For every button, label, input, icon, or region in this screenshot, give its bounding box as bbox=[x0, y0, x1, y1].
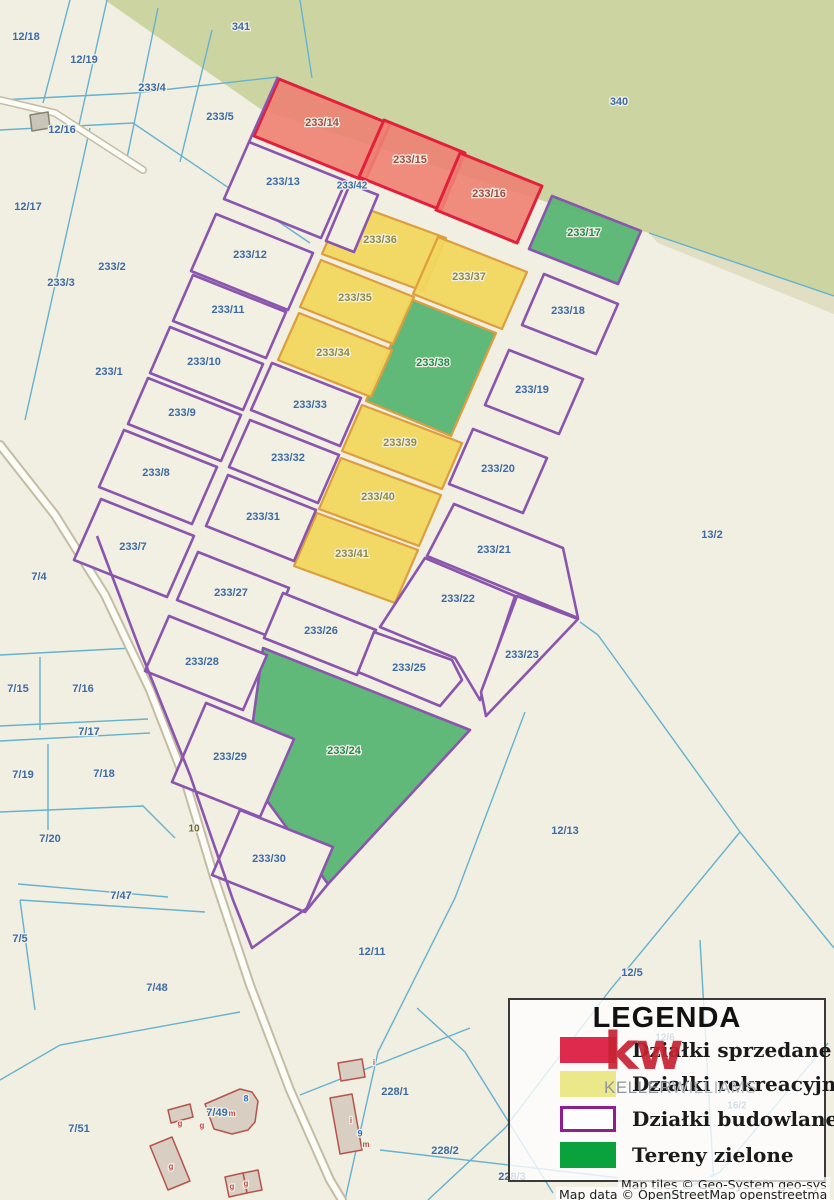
map-label-233-26: 233/26 bbox=[304, 625, 338, 637]
map-label-g: g bbox=[244, 1179, 249, 1188]
map-label-233-27: 233/27 bbox=[214, 587, 248, 599]
map-label-7-5: 7/5 bbox=[12, 933, 27, 945]
map-label-233-3: 233/3 bbox=[47, 277, 75, 289]
map-label-233-17: 233/17 bbox=[567, 227, 601, 239]
map-label-233-40: 233/40 bbox=[361, 491, 395, 503]
legend-swatch-building-icon bbox=[560, 1106, 616, 1132]
map-label-233-28: 233/28 bbox=[185, 656, 219, 668]
map-label-233-34: 233/34 bbox=[316, 347, 351, 359]
map-label-233-19: 233/19 bbox=[515, 384, 549, 396]
map-label-7-4: 7/4 bbox=[31, 571, 47, 583]
map-label-7-18: 7/18 bbox=[93, 768, 114, 780]
map-label-233-12: 233/12 bbox=[233, 249, 267, 261]
map-label-7-47: 7/47 bbox=[110, 890, 131, 902]
map-label-12-11: 12/11 bbox=[359, 946, 386, 958]
map-label-228-2: 228/2 bbox=[431, 1145, 459, 1157]
map-label-7-48: 7/48 bbox=[146, 982, 167, 994]
map-label-233-10: 233/10 bbox=[187, 356, 221, 368]
map-label-233-4: 233/4 bbox=[138, 82, 166, 94]
map-label-233-41: 233/41 bbox=[335, 548, 369, 560]
legend-row-building: Działki budowlane bbox=[510, 1106, 824, 1134]
map-label-340: 340 bbox=[610, 96, 628, 108]
map-label-233-29: 233/29 bbox=[213, 751, 247, 763]
map-label-7-16: 7/16 bbox=[72, 683, 93, 695]
map-label-233-22: 233/22 bbox=[441, 593, 475, 605]
map-label-233-33: 233/33 bbox=[293, 399, 327, 411]
map-label-12-5: 12/5 bbox=[621, 967, 642, 979]
map-label-233-23: 233/23 bbox=[505, 649, 539, 661]
map-label-233-5: 233/5 bbox=[206, 111, 234, 123]
map-label-233-31: 233/31 bbox=[246, 511, 280, 523]
map-label-12-17: 12/17 bbox=[14, 201, 42, 213]
map-page: 12/1812/19233/4233/534134012/1612/17233/… bbox=[0, 0, 834, 1200]
legend-row-green: Tereny zielone bbox=[510, 1142, 824, 1170]
map-label-7-17: 7/17 bbox=[78, 726, 99, 738]
map-label-233-9: 233/9 bbox=[168, 407, 196, 419]
map-label-g: g bbox=[178, 1119, 183, 1128]
map-label-233-13: 233/13 bbox=[266, 176, 300, 188]
map-label-12-13: 12/13 bbox=[551, 825, 579, 837]
map-label-228-1: 228/1 bbox=[381, 1086, 409, 1098]
map-label-i: i bbox=[373, 1058, 375, 1067]
map-label-12-19: 12/19 bbox=[70, 54, 98, 66]
map-label-g: g bbox=[200, 1121, 205, 1130]
map-label-233-37: 233/37 bbox=[452, 271, 486, 283]
map-label-233-24: 233/24 bbox=[327, 745, 362, 757]
map-label-7-19: 7/19 bbox=[12, 769, 33, 781]
legend-label-sold: Działki sprzedane bbox=[632, 1038, 831, 1062]
map-label-233-21: 233/21 bbox=[477, 544, 511, 556]
map-label-7-49: 7/49 bbox=[206, 1107, 227, 1119]
map-label-g: g bbox=[230, 1182, 235, 1191]
legend-swatch-recreational-icon bbox=[560, 1071, 616, 1097]
map-label-233-15: 233/15 bbox=[393, 154, 427, 166]
building-house-228-1a bbox=[338, 1059, 365, 1081]
map-label-13-2: 13/2 bbox=[701, 529, 722, 541]
map-label-233-16: 233/16 bbox=[472, 188, 506, 200]
map-label-9: 9 bbox=[357, 1128, 362, 1138]
legend-swatch-sold-icon bbox=[560, 1037, 616, 1063]
legend-title: LEGENDA bbox=[510, 1002, 824, 1035]
map-label-7-51: 7/51 bbox=[68, 1123, 89, 1135]
legend-row-recreational: Działki rekreacyjne bbox=[510, 1071, 824, 1099]
map-label-233-1: 233/1 bbox=[95, 366, 123, 378]
building-shed bbox=[30, 112, 50, 131]
map-label-233-38: 233/38 bbox=[416, 357, 450, 369]
legend-label-green: Tereny zielone bbox=[632, 1143, 794, 1167]
map-label-233-20: 233/20 bbox=[481, 463, 515, 475]
map-label-233-2: 233/2 bbox=[98, 261, 126, 273]
map-label-10: 10 bbox=[188, 824, 200, 835]
map-label-233-36: 233/36 bbox=[363, 234, 397, 246]
map-label-7-20: 7/20 bbox=[39, 833, 60, 845]
map-label-233-32: 233/32 bbox=[271, 452, 305, 464]
map-label-12-18: 12/18 bbox=[12, 31, 40, 43]
map-label-233-25: 233/25 bbox=[392, 662, 426, 674]
attribution-map-data: Map data © OpenStreetMap openstreetma bbox=[556, 1187, 830, 1200]
map-label-7-15: 7/15 bbox=[7, 683, 28, 695]
map-label-233-7: 233/7 bbox=[119, 541, 147, 553]
map-label-m: m bbox=[362, 1140, 369, 1149]
map-label-i: i bbox=[350, 1116, 352, 1125]
map-label-233-11: 233/11 bbox=[211, 304, 244, 316]
map-label-233-39: 233/39 bbox=[383, 437, 417, 449]
map-label-341: 341 bbox=[232, 21, 250, 33]
map-label-233-42: 233/42 bbox=[337, 181, 368, 192]
map-label-233-14: 233/14 bbox=[305, 117, 340, 129]
map-label-233-30: 233/30 bbox=[252, 853, 286, 865]
map-label-233-8: 233/8 bbox=[142, 467, 170, 479]
legend-panel: LEGENDA Działki sprzedane Działki rekrea… bbox=[508, 998, 826, 1182]
legend-row-sold: Działki sprzedane bbox=[510, 1037, 824, 1065]
map-label-233-35: 233/35 bbox=[338, 292, 372, 304]
map-label-233-18: 233/18 bbox=[551, 305, 585, 317]
map-label-12-16: 12/16 bbox=[48, 124, 76, 136]
map-label-g: g bbox=[169, 1162, 174, 1171]
map-label-8: 8 bbox=[243, 1093, 248, 1103]
map-label-m: m bbox=[228, 1109, 235, 1118]
legend-label-building: Działki budowlane bbox=[632, 1107, 834, 1131]
legend-label-recreational: Działki rekreacyjne bbox=[632, 1072, 834, 1096]
legend-swatch-green-icon bbox=[560, 1142, 616, 1168]
